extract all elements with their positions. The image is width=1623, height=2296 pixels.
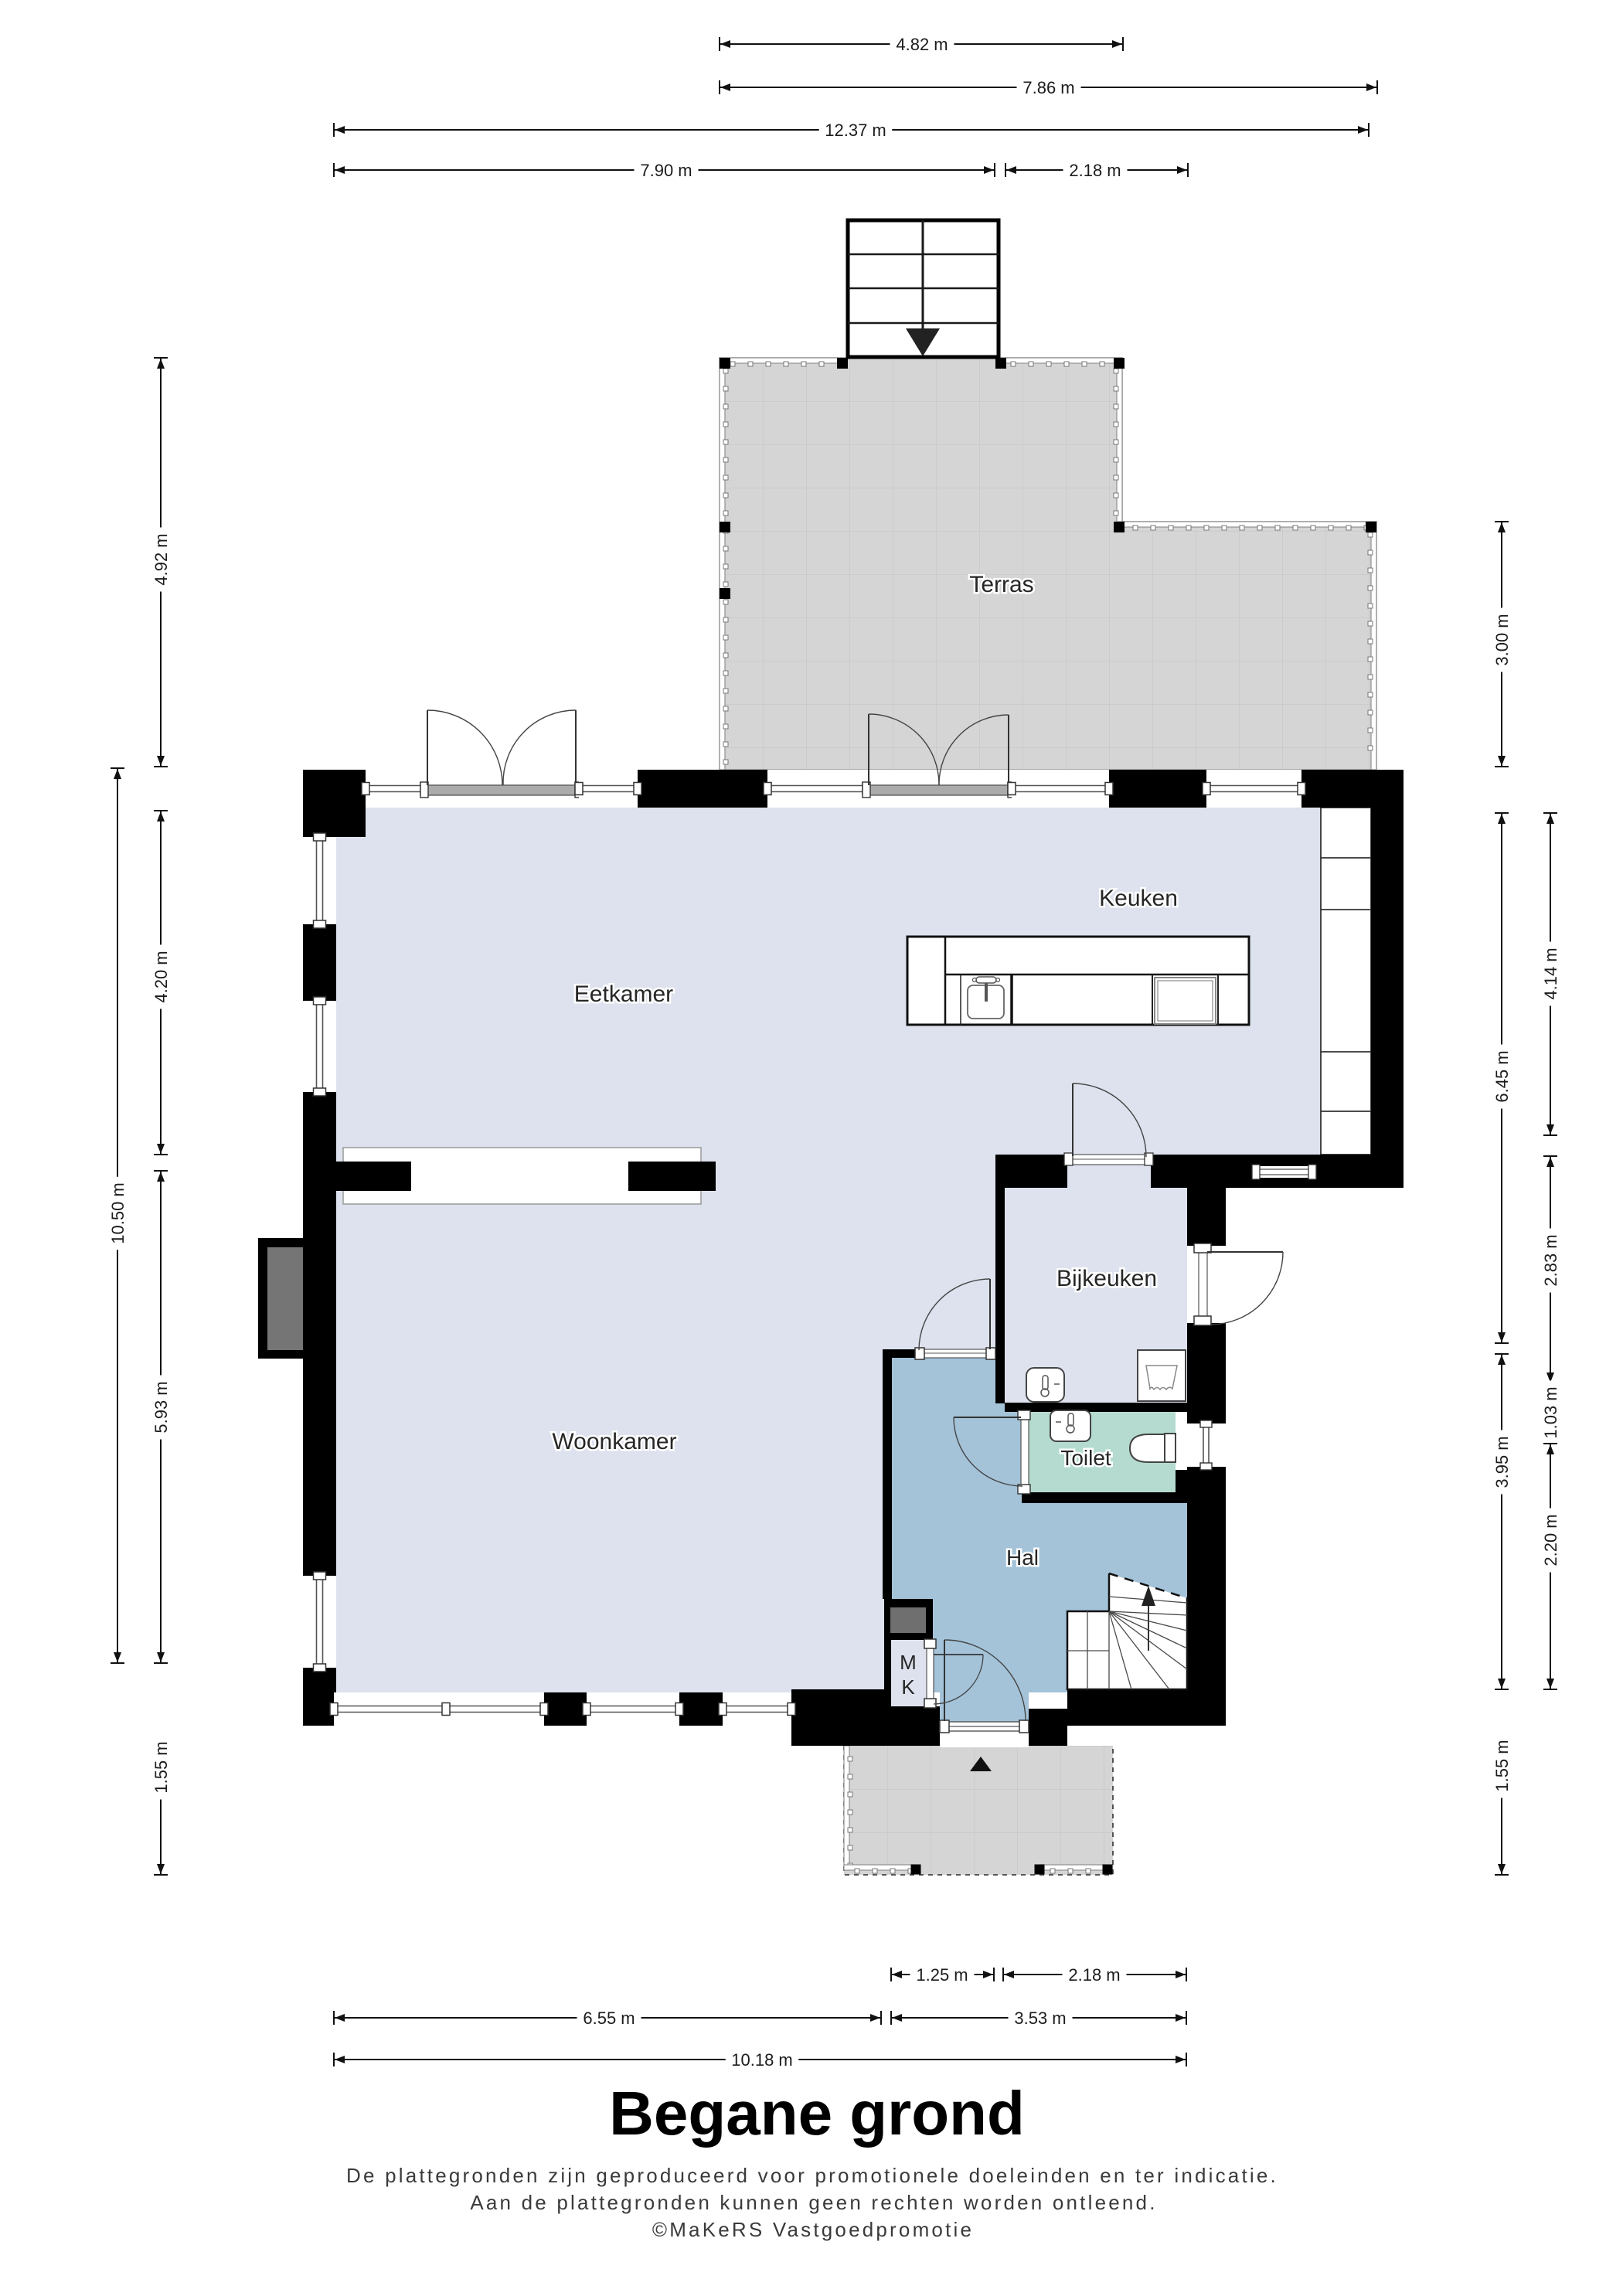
svg-text:10.18 m: 10.18 m <box>731 2050 793 2070</box>
svg-text:4.14 m: 4.14 m <box>1541 947 1560 999</box>
svg-text:5.93 m: 5.93 m <box>151 1381 171 1433</box>
svg-text:Aan de plattegronden kunnen ge: Aan de plattegronden kunnen geen rechten… <box>470 2191 1157 2214</box>
svg-text:4.82 m: 4.82 m <box>896 35 948 54</box>
svg-text:Keuken: Keuken <box>1099 886 1178 911</box>
svg-text:Bijkeuken: Bijkeuken <box>1056 1266 1157 1291</box>
svg-text:2.18 m: 2.18 m <box>1069 161 1121 180</box>
svg-text:2.20 m: 2.20 m <box>1541 1514 1560 1566</box>
svg-text:Hal: Hal <box>1006 1546 1039 1570</box>
svg-text:2.18 m: 2.18 m <box>1068 1965 1120 1985</box>
svg-text:10.50 m: 10.50 m <box>108 1182 128 1244</box>
svg-text:7.90 m: 7.90 m <box>640 161 692 180</box>
svg-text:©MaKeRS Vastgoedpromotie: ©MaKeRS Vastgoedpromotie <box>652 2218 974 2241</box>
svg-text:12.37 m: 12.37 m <box>825 121 886 140</box>
svg-text:De plattegronden zijn geproduc: De plattegronden zijn geproduceerd voor … <box>346 2164 1278 2187</box>
svg-text:Eetkamer: Eetkamer <box>574 981 673 1007</box>
svg-text:Toilet: Toilet <box>1060 1446 1111 1470</box>
svg-text:K: K <box>901 1675 915 1699</box>
svg-text:1.25 m: 1.25 m <box>916 1965 968 1985</box>
svg-text:Begane grond: Begane grond <box>609 2079 1025 2148</box>
svg-text:3.53 m: 3.53 m <box>1014 2009 1066 2028</box>
svg-text:M: M <box>900 1651 917 1674</box>
svg-text:6.55 m: 6.55 m <box>583 2009 635 2028</box>
svg-text:1.03 m: 1.03 m <box>1541 1386 1560 1438</box>
svg-text:3.00 m: 3.00 m <box>1492 614 1512 665</box>
svg-text:6.45 m: 6.45 m <box>1492 1050 1512 1102</box>
svg-text:1.55 m: 1.55 m <box>151 1741 171 1793</box>
svg-text:7.86 m: 7.86 m <box>1022 78 1074 97</box>
svg-text:4.20 m: 4.20 m <box>151 951 171 1002</box>
svg-text:Terras: Terras <box>969 572 1033 597</box>
svg-text:Woonkamer: Woonkamer <box>552 1429 676 1454</box>
svg-text:4.92 m: 4.92 m <box>151 533 171 585</box>
svg-text:3.95 m: 3.95 m <box>1492 1436 1512 1488</box>
svg-text:2.83 m: 2.83 m <box>1541 1234 1560 1286</box>
svg-text:1.55 m: 1.55 m <box>1492 1740 1512 1791</box>
